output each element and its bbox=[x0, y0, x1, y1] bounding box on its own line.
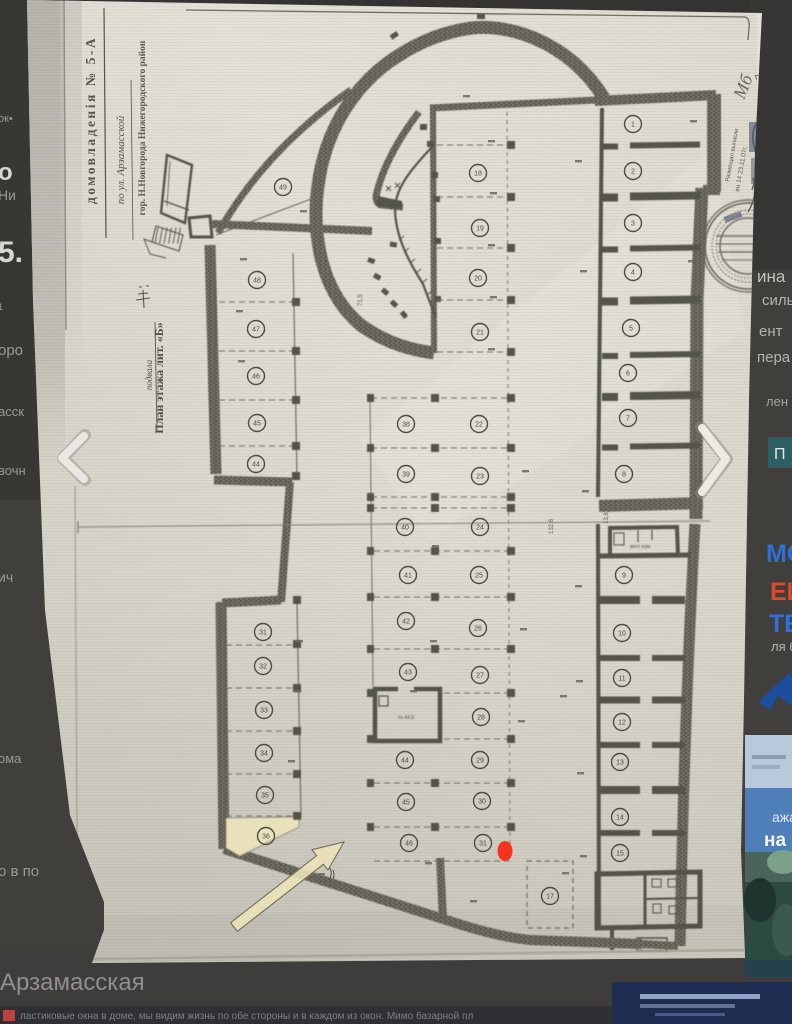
svg-text:6: 6 bbox=[626, 371, 630, 378]
svg-text:15: 15 bbox=[616, 851, 624, 858]
svg-text:вочн: вочн bbox=[0, 463, 26, 478]
svg-text:23: 23 bbox=[476, 474, 484, 481]
svg-text:вент кам: вент кам bbox=[630, 544, 651, 550]
svg-text:27: 27 bbox=[476, 673, 484, 680]
svg-text:пера: пера bbox=[757, 349, 791, 366]
svg-text:21: 21 bbox=[476, 330, 484, 337]
svg-text:11: 11 bbox=[618, 676, 625, 683]
svg-text:31: 31 bbox=[479, 841, 487, 848]
svg-text:о: о bbox=[0, 159, 13, 186]
svg-text:ля б: ля б bbox=[771, 639, 792, 654]
svg-text:асск: асск bbox=[0, 404, 24, 419]
svg-text:48: 48 bbox=[253, 278, 261, 285]
svg-text:12: 12 bbox=[618, 720, 626, 727]
svg-text:1: 1 bbox=[631, 122, 635, 129]
svg-text:36: 36 bbox=[262, 834, 270, 841]
svg-text:25: 25 bbox=[475, 573, 483, 580]
svg-text:45: 45 bbox=[253, 421, 261, 428]
svg-text:на: на bbox=[764, 830, 786, 851]
svg-text:40: 40 bbox=[401, 525, 409, 532]
svg-text:Арзамасская: Арзамасская bbox=[0, 969, 145, 996]
svg-text:35: 35 bbox=[261, 793, 269, 800]
svg-text:132,8: 132,8 bbox=[549, 518, 555, 534]
svg-text:по ул. Арзамасской: по ул. Арзамасской bbox=[115, 115, 127, 204]
svg-text:24: 24 bbox=[476, 525, 484, 532]
svg-text:46: 46 bbox=[405, 841, 413, 848]
svg-text:41: 41 bbox=[404, 573, 412, 580]
svg-text:44: 44 bbox=[252, 462, 260, 469]
svg-text:оро: оро bbox=[0, 342, 23, 359]
svg-text:ич: ич bbox=[0, 569, 13, 585]
svg-text:31: 31 bbox=[259, 630, 267, 637]
svg-text:План этажа лит. «Б»: План этажа лит. «Б» bbox=[152, 322, 166, 433]
svg-text:1: 1 bbox=[0, 302, 3, 312]
svg-text:МО: МО bbox=[766, 540, 792, 568]
svg-text:13: 13 bbox=[616, 760, 624, 767]
svg-text:22: 22 bbox=[475, 422, 483, 429]
svg-text:43: 43 bbox=[404, 670, 412, 677]
svg-text:Ни: Ни bbox=[0, 187, 16, 203]
svg-text:лен: лен bbox=[766, 394, 788, 409]
svg-text:о в по: о в по bbox=[0, 863, 39, 880]
svg-text:19: 19 bbox=[476, 226, 484, 233]
svg-text:33: 33 bbox=[260, 708, 268, 715]
svg-text:32: 32 bbox=[259, 664, 267, 671]
svg-text:42: 42 bbox=[402, 619, 410, 626]
svg-text:ина: ина bbox=[757, 267, 786, 286]
svg-text:18: 18 bbox=[474, 171, 482, 178]
svg-text:20: 20 bbox=[474, 276, 482, 283]
svg-text:13,8: 13,8 bbox=[604, 512, 610, 524]
svg-text:пз 44,6: пз 44,6 bbox=[398, 715, 414, 721]
svg-text:8: 8 bbox=[622, 472, 626, 479]
svg-text:45: 45 bbox=[402, 800, 410, 807]
svg-text:П: П bbox=[774, 446, 786, 463]
svg-text:34: 34 bbox=[260, 751, 268, 758]
svg-text:49: 49 bbox=[279, 185, 287, 192]
svg-text:гор. Н.Новгорода Нижегородског: гор. Н.Новгорода Нижегородского район bbox=[137, 40, 148, 215]
svg-text:ома: ома bbox=[0, 751, 22, 766]
svg-text:47: 47 bbox=[252, 327, 260, 334]
svg-text:44: 44 bbox=[401, 758, 409, 765]
svg-text:71,5: 71,5 bbox=[358, 294, 364, 306]
svg-text:домовладенія № 5-А: домовладенія № 5-А bbox=[83, 36, 98, 204]
svg-text:10: 10 bbox=[618, 631, 626, 638]
svg-text:2: 2 bbox=[631, 169, 635, 176]
svg-text:46: 46 bbox=[252, 374, 260, 381]
svg-text:3: 3 bbox=[631, 221, 635, 228]
svg-text:29: 29 bbox=[476, 758, 484, 765]
svg-text:5.: 5. bbox=[0, 236, 23, 269]
svg-text:38: 38 bbox=[402, 422, 410, 429]
svg-text:ажа: ажа bbox=[772, 809, 792, 825]
svg-text:ЕИ: ЕИ bbox=[770, 578, 792, 606]
svg-text:30: 30 bbox=[478, 799, 486, 806]
svg-text:9: 9 bbox=[622, 573, 626, 580]
svg-text:ок•: ок• bbox=[0, 113, 13, 125]
svg-text:4: 4 bbox=[631, 270, 635, 277]
svg-text:ластиковые окна в доме, мы вид: ластиковые окна в доме, мы видим жизнь п… bbox=[20, 1010, 473, 1022]
svg-text:7: 7 bbox=[626, 416, 630, 423]
svg-text:26: 26 bbox=[474, 626, 482, 633]
svg-text:17: 17 bbox=[546, 894, 554, 901]
svg-text:39: 39 bbox=[402, 472, 410, 479]
svg-text:28: 28 bbox=[477, 715, 485, 722]
svg-text:ент: ент bbox=[759, 323, 783, 340]
svg-text:силь: силь bbox=[762, 292, 792, 309]
svg-text:ТЕ: ТЕ bbox=[769, 610, 792, 638]
svg-text:5: 5 bbox=[629, 326, 633, 333]
svg-text:14: 14 bbox=[616, 815, 624, 822]
